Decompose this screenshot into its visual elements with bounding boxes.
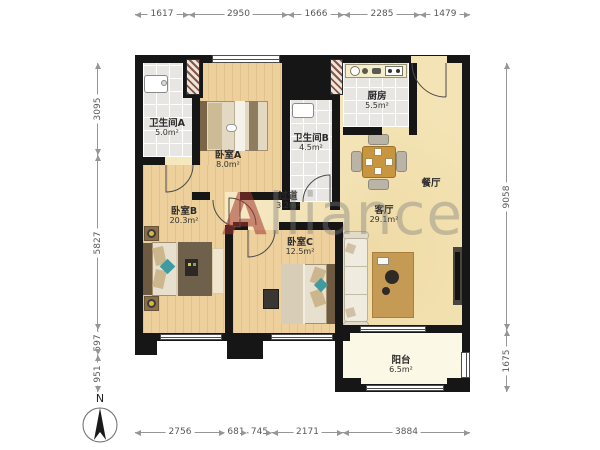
dim-value: 9058 [502, 182, 512, 211]
dim-left-2: 5827 [97, 155, 98, 330]
bedroom-c-headboard [327, 264, 335, 324]
wall-bathroom-b-left [282, 63, 290, 210]
bedroom-a-pillow [208, 103, 222, 149]
wall-left [135, 55, 143, 341]
wall-kitchen-bottom [343, 127, 382, 135]
wall-bathroom-a-bottom [135, 157, 165, 165]
entry-opening [411, 56, 447, 63]
room-area: 29.1m² [370, 216, 399, 224]
dim-right-2: 1675 [506, 330, 507, 392]
dim-value: 597 [93, 331, 103, 354]
wall-bathroom-b-bottom [330, 202, 340, 210]
room-area: 12.5m² [286, 248, 315, 256]
dim-value: 1675 [502, 347, 512, 376]
floor-plan-canvas: 卫生间A 5.0m² 卧室A 8.0m² 卫生间B 4.5m² 厨房 5.5m²… [0, 0, 600, 450]
dim-left-4: 951 [97, 355, 98, 392]
bedroom-b-headboard [143, 243, 152, 295]
room-label-bedroom-b: 卧室B 20.3m² [170, 207, 199, 225]
coffee-stool [382, 287, 390, 295]
kitchen-sink [350, 66, 360, 76]
bedroom-b-laptop [185, 259, 198, 276]
room-area: 3.2m² [276, 202, 300, 210]
room-label-bathroom-a: 卫生间A 5.0m² [149, 119, 185, 137]
dim-top-2: 2950 [189, 14, 288, 15]
coffee-table [385, 270, 399, 284]
angled-window [330, 59, 343, 95]
dim-bottom-3: 745 [247, 432, 272, 433]
wall-pier [135, 333, 157, 355]
sofa-cushion-line [344, 266, 368, 267]
wall-bedroom-b-right [225, 225, 233, 333]
balcony-window-bottom [366, 385, 444, 391]
dim-value: 2950 [224, 9, 253, 19]
dim-value: 1479 [431, 9, 460, 19]
dim-value: 3095 [93, 95, 103, 124]
dim-value: 2285 [368, 9, 397, 19]
bedroom-b-window [160, 334, 222, 340]
room-area: 5.0m² [149, 129, 185, 137]
dim-left-1: 3095 [97, 63, 98, 155]
compass-icon [78, 403, 122, 447]
bedroom-c-duvet [281, 264, 305, 324]
dim-bottom-1: 2756 [135, 432, 225, 433]
room-area: 8.0m² [215, 161, 241, 169]
room-label-kitchen: 厨房 5.5m² [365, 92, 389, 110]
dining-placemat [365, 158, 373, 166]
bedroom-b-lamp-icon [147, 299, 156, 308]
dim-top-3: 1666 [288, 14, 344, 15]
room-label-balcony: 阳台 6.5m² [389, 356, 413, 374]
dim-value: 5827 [93, 228, 103, 257]
bedroom-a-runner [249, 101, 258, 151]
wall-pier [227, 333, 263, 359]
bedroom-b-laptop-key [193, 263, 196, 266]
dim-value: 1617 [148, 9, 177, 19]
bedroom-b-lamp-icon [147, 229, 156, 238]
dining-placemat [374, 167, 382, 175]
bedroom-b-laptop-key [188, 263, 191, 266]
dim-bottom-4: 2171 [272, 432, 343, 433]
kitchen-burner-icon [388, 69, 392, 73]
dining-chair [368, 179, 389, 190]
dining-placemat [374, 148, 382, 156]
dim-bottom-2: 681 [225, 432, 247, 433]
sofa-cushion-line [344, 294, 368, 295]
wall-right [462, 55, 470, 341]
tv-screen [455, 252, 460, 300]
balcony-window-right [461, 352, 470, 378]
wall-bedroom-c-top [233, 222, 248, 230]
dim-value: 745 [248, 427, 271, 437]
bathroom-b-sink [292, 103, 314, 118]
dim-top-1: 1617 [135, 14, 189, 15]
wall-bedroom-a-bottom [192, 192, 210, 200]
room-label-bedroom-a: 卧室A 8.0m² [215, 151, 241, 169]
wall-bathroom-b-right [332, 92, 340, 210]
bathroom-a-faucet-icon [161, 80, 167, 86]
dining-chair [351, 151, 362, 172]
bedroom-c-dresser [263, 289, 279, 309]
bedroom-a-window [212, 55, 280, 63]
wall-bedroom-c-top [279, 222, 343, 230]
dim-bottom-5: 3884 [343, 432, 470, 433]
angled-window [186, 59, 200, 95]
room-area: 4.5m² [293, 144, 329, 152]
dim-top-5: 1479 [420, 14, 470, 15]
bedroom-b-rug [212, 248, 224, 294]
kitchen-hob-item [372, 68, 381, 74]
wall-balcony-pier [447, 378, 470, 392]
dim-value: 1666 [302, 9, 331, 19]
room-label-bedroom-c: 卧室C 12.5m² [286, 238, 315, 256]
dim-top-4: 2285 [344, 14, 420, 15]
dining-chair [396, 151, 407, 172]
kitchen-burner-icon [396, 69, 400, 73]
dining-chair [368, 134, 389, 145]
dining-placemat [385, 158, 393, 166]
dim-value: 681 [224, 427, 247, 437]
kitchen-faucet-icon [362, 68, 368, 74]
room-area: 6.5m² [389, 366, 413, 374]
room-label-living: 客厅 29.1m² [370, 206, 399, 224]
room-label-dining: 餐厅 [421, 179, 440, 189]
bedroom-a-remote [226, 124, 237, 132]
room-area: 20.3m² [170, 217, 199, 225]
dim-right-1: 9058 [506, 63, 507, 330]
room-label-bathroom-b: 卫生间B 4.5m² [293, 134, 329, 152]
room-label-hallway: 过道 3.2m² [276, 192, 300, 210]
wall-balcony-pier [335, 378, 361, 392]
dim-value: 2756 [166, 427, 195, 437]
balcony-sliding-door [360, 326, 426, 332]
dim-left-3: 597 [97, 330, 98, 355]
dim-value: 3884 [392, 427, 421, 437]
dim-value: 951 [93, 362, 103, 385]
wall-bedroom-c-right [335, 222, 343, 333]
room-area: 5.5m² [365, 102, 389, 110]
room-name: 餐厅 [421, 179, 440, 189]
dim-value: 2171 [293, 427, 322, 437]
magazine [377, 257, 389, 265]
bedroom-c-window [271, 334, 333, 340]
wall-kitchen-right [409, 55, 417, 135]
